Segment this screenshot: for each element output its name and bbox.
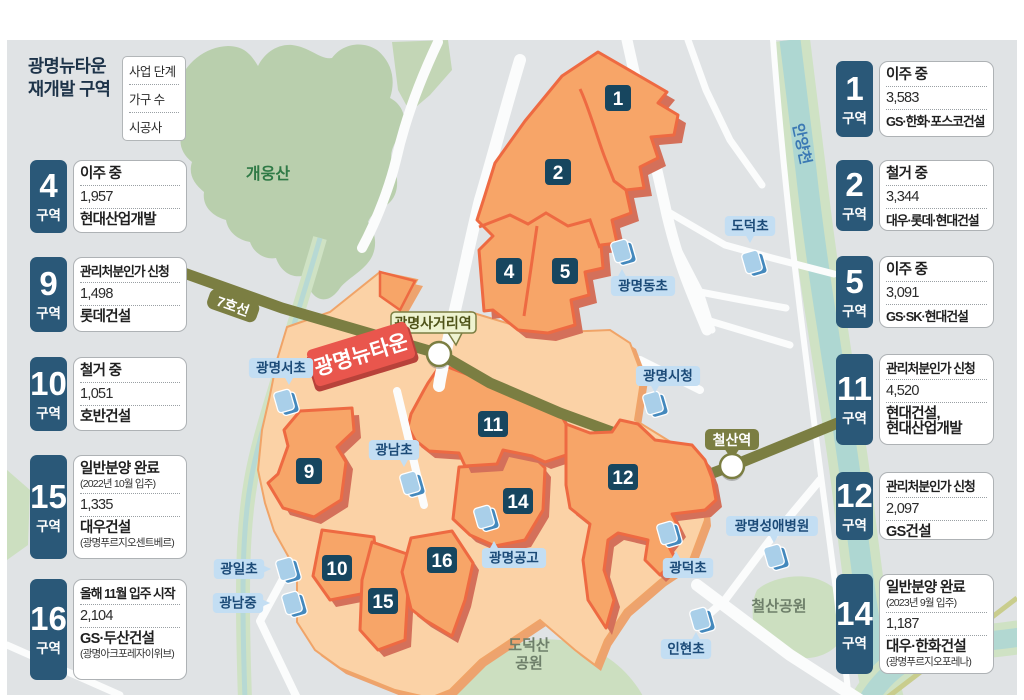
svg-text:광명동초: 광명동초 xyxy=(618,278,668,294)
svg-text:광남중: 광남중 xyxy=(219,595,256,611)
svg-text:광명서초: 광명서초 xyxy=(256,360,306,376)
svg-text:광명성애병원: 광명성애병원 xyxy=(735,518,810,534)
svg-text:광일초: 광일초 xyxy=(220,561,258,577)
svg-text:광덕초: 광덕초 xyxy=(669,560,707,576)
svg-text:광남초: 광남초 xyxy=(375,442,413,458)
svg-text:인현초: 인현초 xyxy=(667,641,705,657)
svg-text:광명공고: 광명공고 xyxy=(489,550,539,566)
svg-text:도덕초: 도덕초 xyxy=(731,218,769,234)
svg-text:광명시청: 광명시청 xyxy=(643,368,693,384)
